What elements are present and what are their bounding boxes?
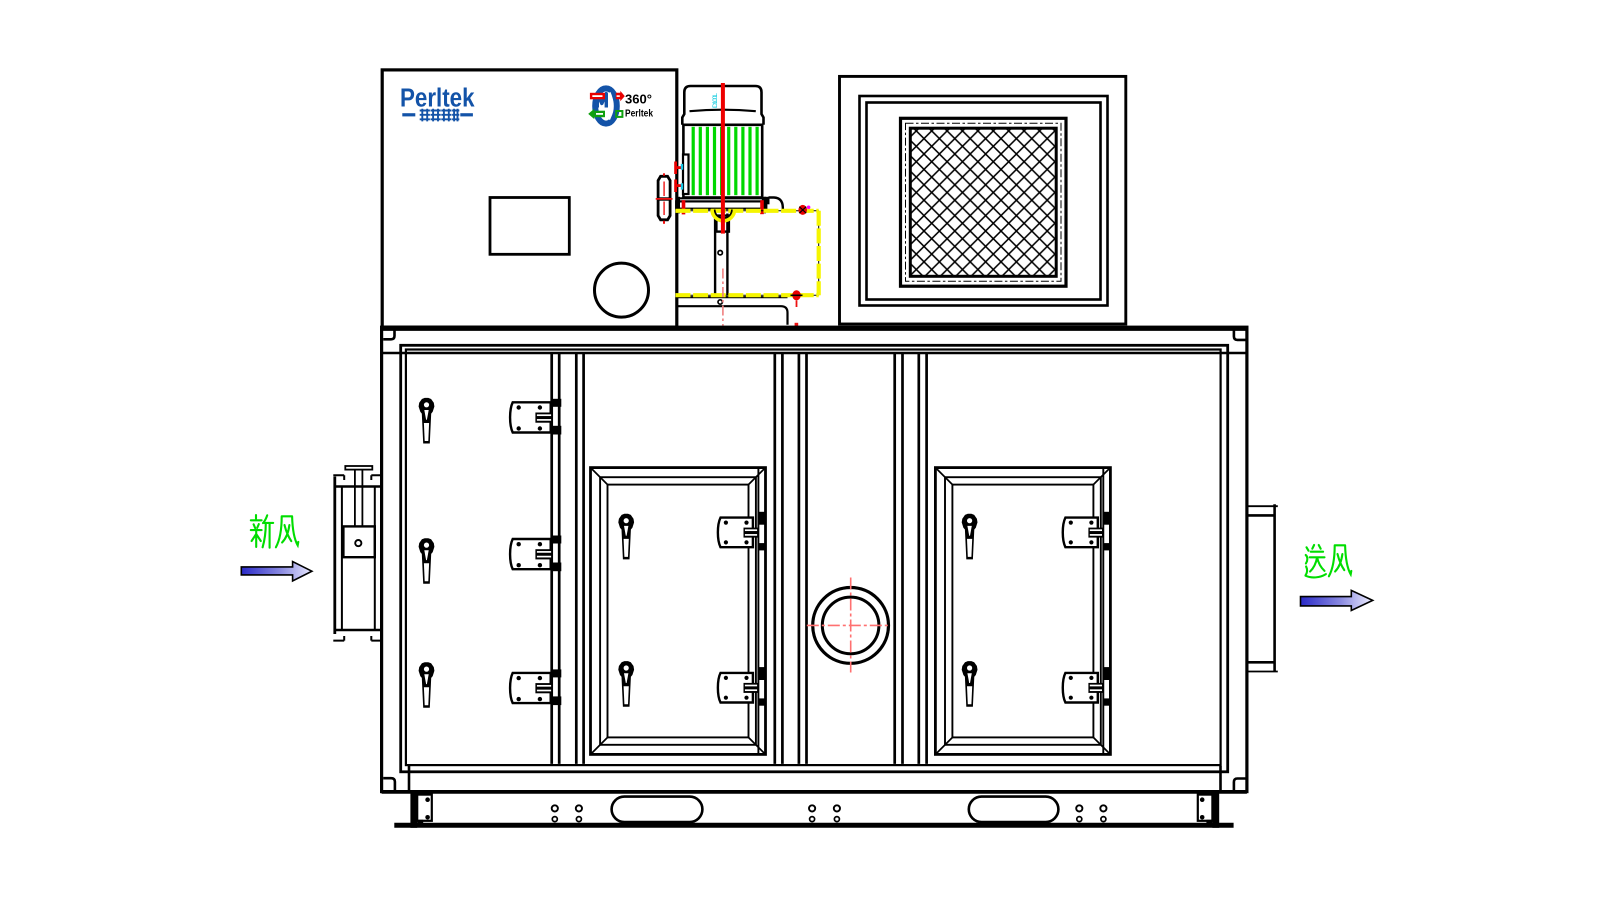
svg-text:Perltek: Perltek	[400, 85, 475, 113]
svg-text:Perltek: Perltek	[625, 108, 653, 120]
svg-text:D100L: D100L	[712, 93, 719, 108]
svg-text:360°: 360°	[625, 92, 652, 107]
